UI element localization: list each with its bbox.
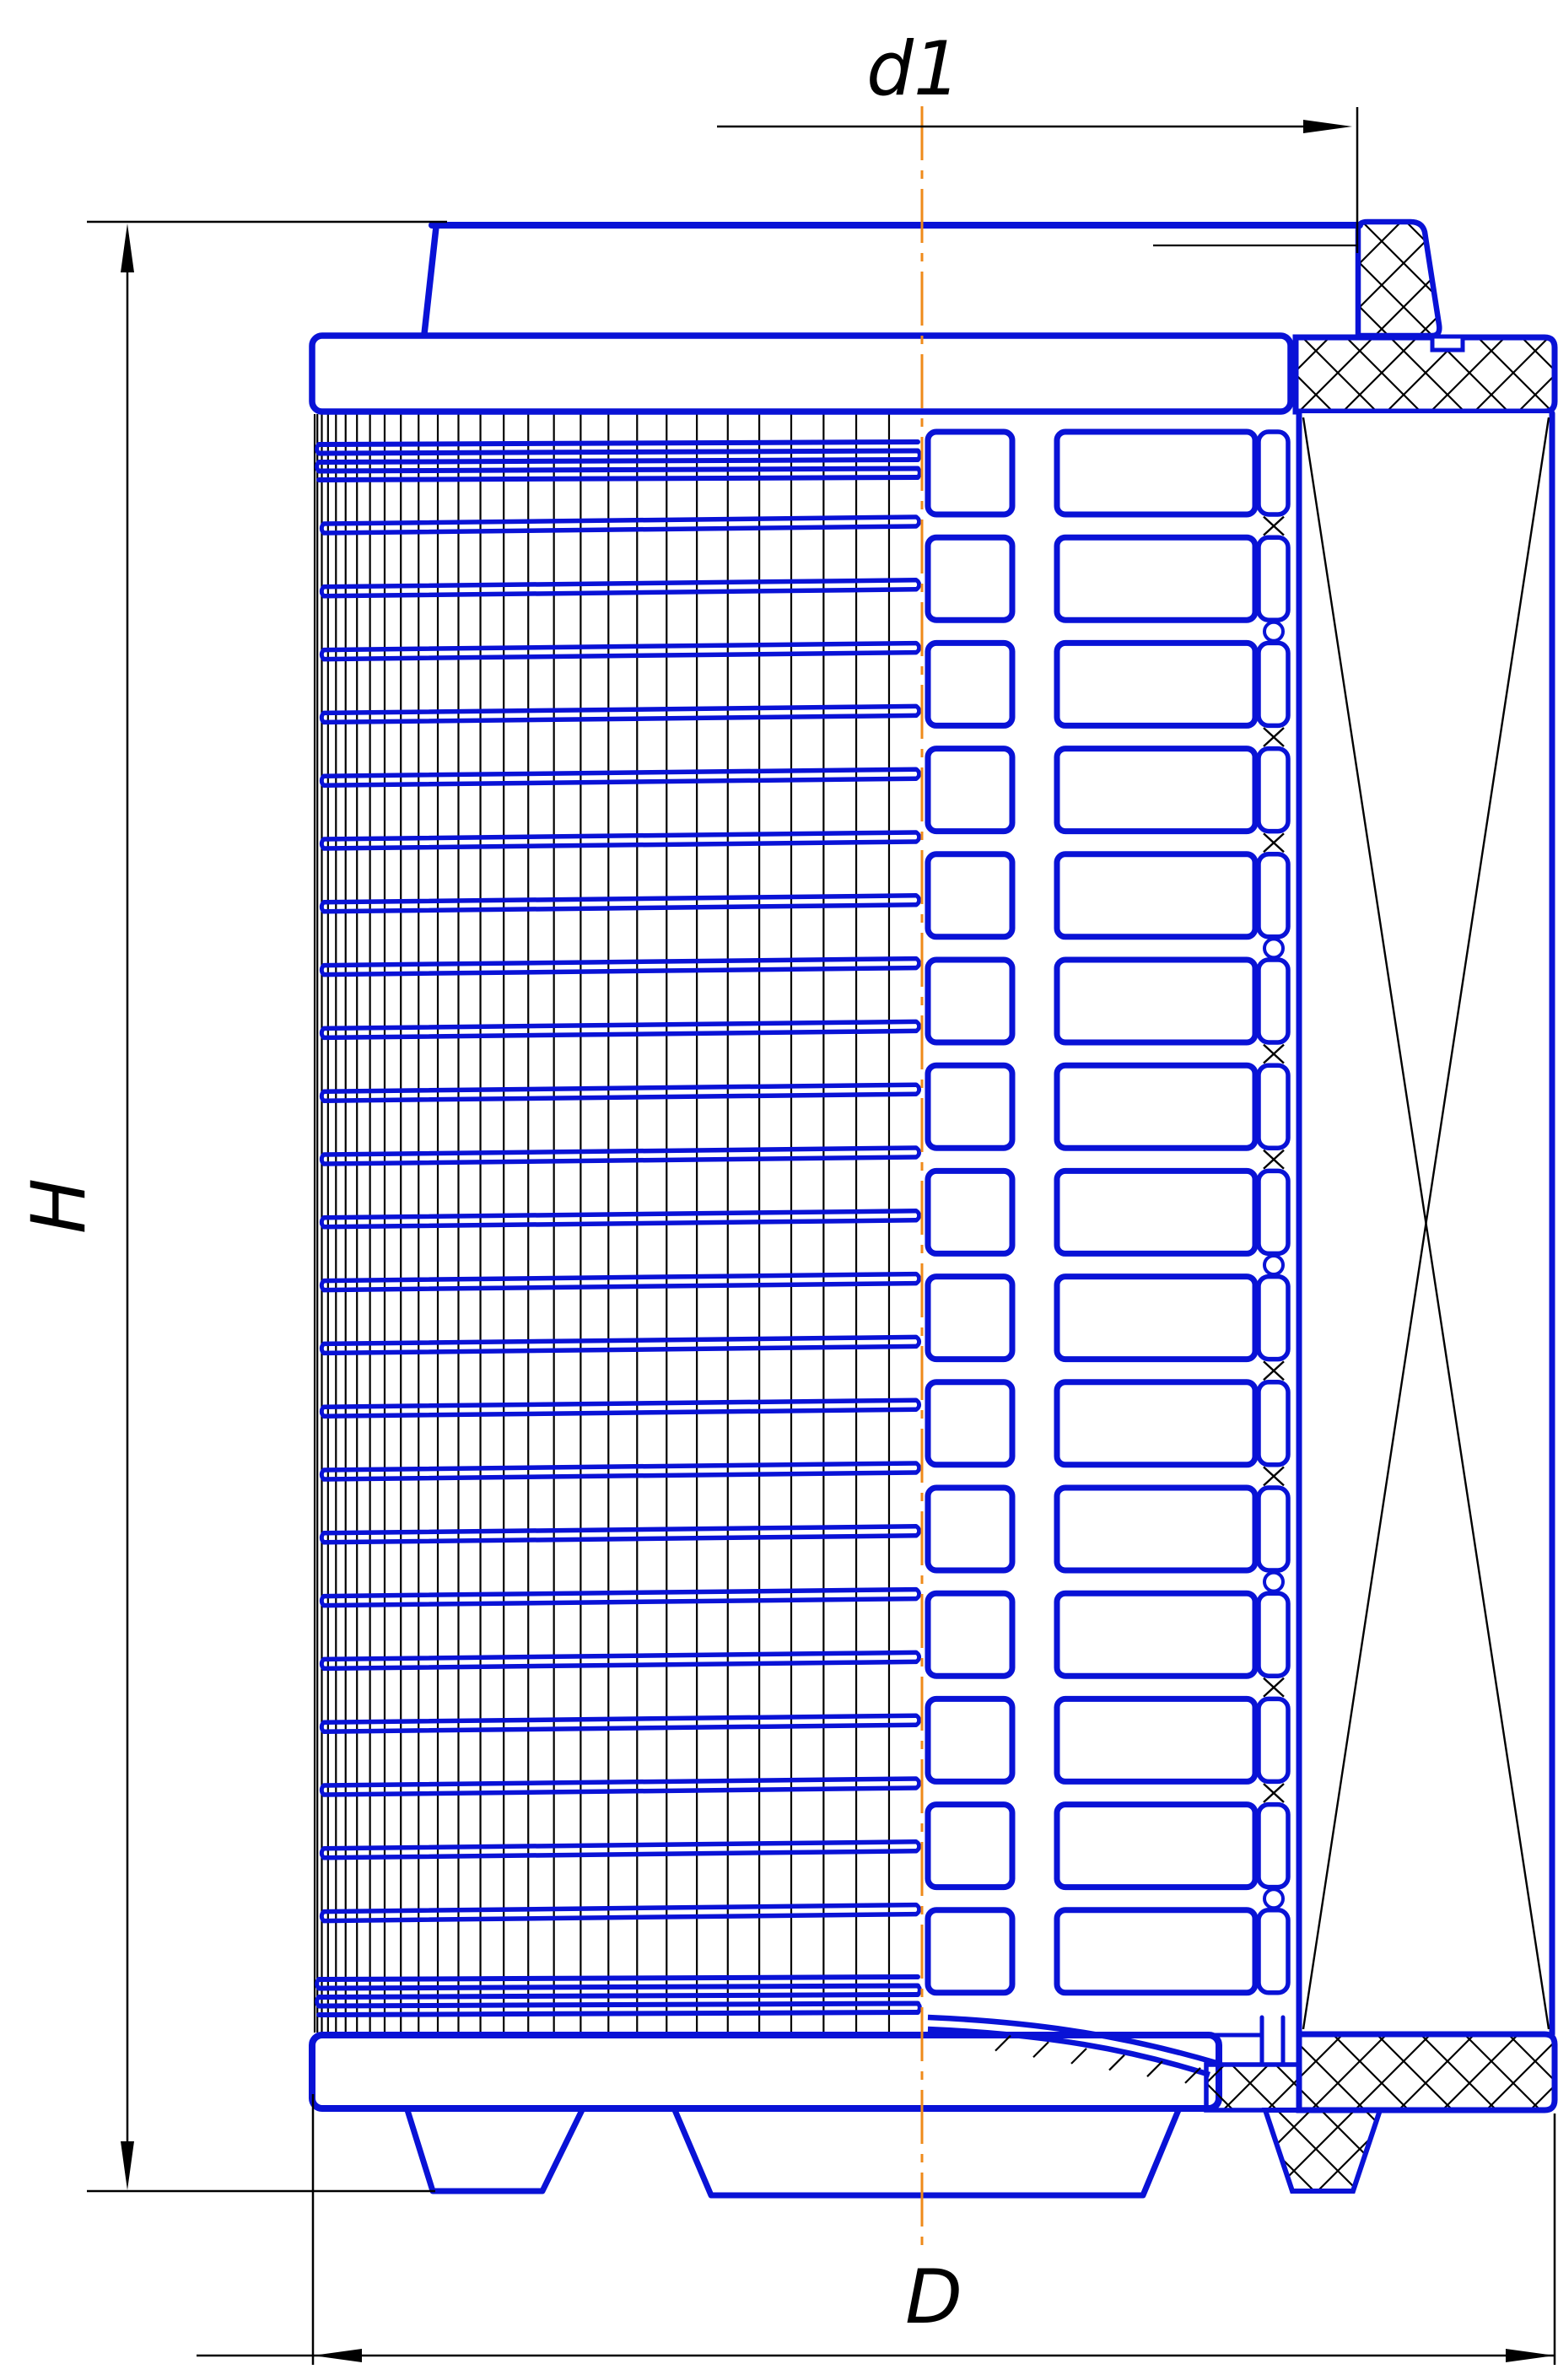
wire-bundle — [317, 442, 920, 480]
wire-wrap — [321, 1715, 919, 1731]
bottom-cap-foot-section — [1265, 2110, 1380, 2191]
wire-wrap — [321, 1527, 919, 1543]
pleat-edge-channel — [1259, 432, 1288, 514]
pleat-outer-box — [1057, 1488, 1255, 1570]
dimension-arrowhead — [121, 223, 134, 272]
pleat-edge-channel — [1259, 1171, 1288, 1253]
wire-wrap — [321, 1337, 919, 1353]
filter-element-section-drawing: H d1 D — [0, 0, 1558, 2380]
pleat-outer-box — [1057, 1805, 1255, 1887]
wire-wrap — [321, 1148, 919, 1164]
pleat-row — [928, 1382, 1288, 1486]
wire-turn-left — [321, 1281, 324, 1290]
wire-turn-right — [916, 517, 919, 526]
pleat-row — [928, 643, 1288, 746]
filter-element-body — [312, 222, 1555, 2195]
top-cap-ring — [1296, 337, 1555, 412]
wire-wrap — [321, 517, 919, 533]
pleat-edge-channel — [1259, 1065, 1288, 1148]
support-wire-section — [1264, 622, 1283, 641]
d1-dimension: d1 — [717, 25, 1357, 253]
pleat-edge-channel — [1259, 1488, 1288, 1570]
pleat-edge-channel — [1259, 1593, 1288, 1676]
pleat-edge-channel — [1259, 537, 1288, 620]
wire-turn-right — [916, 580, 919, 590]
seal-gaskets — [1358, 222, 1463, 350]
wire-turn-left — [321, 1785, 324, 1795]
wire-turn-right — [916, 1905, 919, 1914]
pleat-inner-box — [928, 960, 1012, 1042]
wire-wrap — [321, 832, 919, 848]
wire-turn-left — [321, 776, 324, 785]
spiral-wire-wraps — [317, 442, 920, 2015]
pleat-edge-channel — [1259, 960, 1288, 1042]
wire-turn-left — [321, 839, 324, 848]
wire-turn-right — [916, 1211, 919, 1220]
outer-support-tube — [1299, 413, 1552, 2034]
wire-turn-left — [321, 713, 324, 722]
wire-turn-left — [321, 966, 324, 975]
wire-wrap — [321, 1652, 919, 1668]
pleat-inner-box — [928, 749, 1012, 832]
pleat-inner-box — [928, 854, 1012, 937]
support-wire-section — [1264, 939, 1283, 957]
pleat-row — [928, 1910, 1288, 1993]
bottom-cap-ring — [1299, 2034, 1555, 2110]
wire-turn-right — [916, 1527, 919, 1536]
wire-turn-left — [321, 1028, 324, 1037]
wire-turn-left — [321, 1912, 324, 1921]
wire-wrap — [321, 1085, 919, 1101]
dimension-arrowhead — [121, 2141, 134, 2190]
wire-turn-right — [916, 832, 919, 842]
pleat-row — [928, 1065, 1288, 1169]
wire-wrap — [321, 580, 919, 596]
wire-wrap — [321, 1905, 919, 1921]
wire-turn-left — [321, 1091, 324, 1101]
pleat-inner-box — [928, 1065, 1012, 1148]
technical-drawing-canvas: H d1 D — [0, 0, 1558, 2380]
wire-wrap — [321, 1021, 919, 1037]
wire-turn-left — [321, 1407, 324, 1416]
pleat-edge-channel — [1259, 1699, 1288, 1781]
wire-turn-right — [916, 896, 919, 905]
wire-turn-right — [916, 1337, 919, 1346]
wire-wrap — [321, 1463, 919, 1479]
dimension-arrowhead — [1506, 2349, 1555, 2362]
pleat-inner-box — [928, 1277, 1012, 1360]
wire-turn-right — [916, 959, 919, 968]
d1-dimension-label: d1 — [866, 25, 961, 112]
wire-wrap — [321, 1779, 919, 1795]
pleat-row — [928, 1593, 1288, 1697]
bottom-cap-band — [1206, 2065, 1299, 2110]
pleat-inner-box — [928, 1910, 1012, 1993]
wire-wrap — [321, 1842, 919, 1858]
pleat-outer-box — [1057, 1382, 1255, 1465]
pleat-edge-channel — [1259, 749, 1288, 832]
pleat-row — [928, 960, 1288, 1063]
wire-turn-left — [321, 1533, 324, 1543]
wire-turn-left — [321, 1659, 324, 1668]
wire-wrap — [321, 769, 919, 785]
wire-turn-left — [321, 1343, 324, 1353]
pleat-outer-box — [1057, 854, 1255, 937]
pleat-edge-channel — [1259, 1382, 1288, 1465]
wire-turn-right — [916, 1021, 919, 1031]
wire-turn-right — [916, 1400, 919, 1409]
wire-wrap — [321, 706, 919, 722]
pleat-outer-box — [1057, 1065, 1255, 1148]
pleat-inner-box — [928, 1805, 1012, 1887]
wire-turn-left — [321, 1155, 324, 1164]
wire-turn-right — [916, 1779, 919, 1788]
dimension-arrowhead — [1303, 120, 1352, 133]
pleat-row — [928, 432, 1288, 536]
support-wire-section — [1264, 1889, 1283, 1908]
pleat-outer-box — [1057, 1277, 1255, 1360]
support-wire-section — [1264, 1573, 1283, 1591]
wire-turn-left — [321, 1722, 324, 1731]
pleat-row — [928, 1805, 1288, 1909]
pleat-row — [928, 1277, 1288, 1381]
wire-wrap — [321, 1274, 919, 1290]
wire-wrap — [321, 1400, 919, 1416]
top-flange-plate — [312, 336, 1291, 412]
pleat-inner-box — [928, 1488, 1012, 1570]
pleat-inner-box — [928, 537, 1012, 620]
wire-wrap — [321, 959, 919, 975]
wire-turn-right — [916, 769, 919, 778]
wire-turn-right — [916, 1715, 919, 1725]
wire-turn-left — [321, 902, 324, 912]
wire-wrap — [321, 643, 919, 660]
pleat-outer-box — [1057, 432, 1255, 514]
pleat-edge-channel — [1259, 854, 1288, 937]
wire-turn-right — [916, 1842, 919, 1851]
wire-wrap — [321, 1590, 919, 1606]
pleat-outer-box — [1057, 1910, 1255, 1993]
wire-turn-left — [321, 1218, 324, 1227]
pleat-outer-box — [1057, 537, 1255, 620]
pleat-inner-box — [928, 1171, 1012, 1253]
wire-turn-left — [321, 1849, 324, 1858]
bottom-foot-center — [675, 2110, 1178, 2195]
pleat-outer-box — [1057, 1171, 1255, 1253]
wire-turn-right — [916, 1085, 919, 1094]
d-dimension-label: D — [905, 2253, 962, 2340]
top-gasket — [1358, 222, 1439, 336]
pleat-inner-box — [928, 1593, 1012, 1676]
wire-turn-right — [916, 1463, 919, 1473]
wire-bundle — [317, 1977, 920, 2015]
wire-wrap — [321, 1211, 919, 1227]
pleat-edge-channel — [1259, 1805, 1288, 1887]
pleat-outer-box — [1057, 749, 1255, 832]
wire-turn-right — [916, 1652, 919, 1661]
pleat-row — [928, 749, 1288, 853]
wire-turn-left — [321, 1597, 324, 1606]
dimension-arrowhead — [313, 2349, 362, 2362]
wire-turn-right — [916, 706, 919, 715]
pleat-outer-box — [1057, 643, 1255, 725]
wire-turn-left — [321, 1470, 324, 1479]
wire-turn-left — [321, 650, 324, 660]
pleat-inner-box — [928, 432, 1012, 514]
wire-turn-right — [916, 1590, 919, 1599]
wire-turn-right — [916, 1148, 919, 1157]
pleat-edge-channel — [1259, 1277, 1288, 1360]
pleat-edge-channel — [1259, 1910, 1288, 1993]
bottom-foot-left — [407, 2110, 582, 2191]
pleat-inner-box — [928, 643, 1012, 725]
wire-turn-left — [321, 524, 324, 533]
h-dimension-label: H — [15, 1178, 102, 1234]
pleat-row — [928, 1488, 1288, 1591]
pleat-outer-box — [1057, 1699, 1255, 1781]
h-dimension: H — [15, 222, 447, 2191]
pleat-row — [928, 854, 1288, 958]
pleat-inner-box — [928, 1699, 1012, 1781]
pleat-section-rows — [928, 432, 1288, 1993]
pleat-row — [928, 1171, 1288, 1274]
wire-turn-left — [321, 587, 324, 596]
pleat-row — [928, 537, 1288, 641]
pleat-outer-box — [1057, 960, 1255, 1042]
wire-turn-right — [916, 643, 919, 653]
pleat-inner-box — [928, 1382, 1012, 1465]
pleat-outer-box — [1057, 1593, 1255, 1676]
wire-turn-right — [916, 1274, 919, 1284]
top-plate-face — [423, 226, 1362, 335]
bottom-end-cap — [312, 2017, 1555, 2195]
pleat-edge-channel — [1259, 643, 1288, 725]
gasket-notch — [1432, 337, 1463, 350]
wire-wrap — [321, 896, 919, 912]
support-wire-section — [1264, 1256, 1283, 1274]
pleat-row — [928, 1699, 1288, 1802]
